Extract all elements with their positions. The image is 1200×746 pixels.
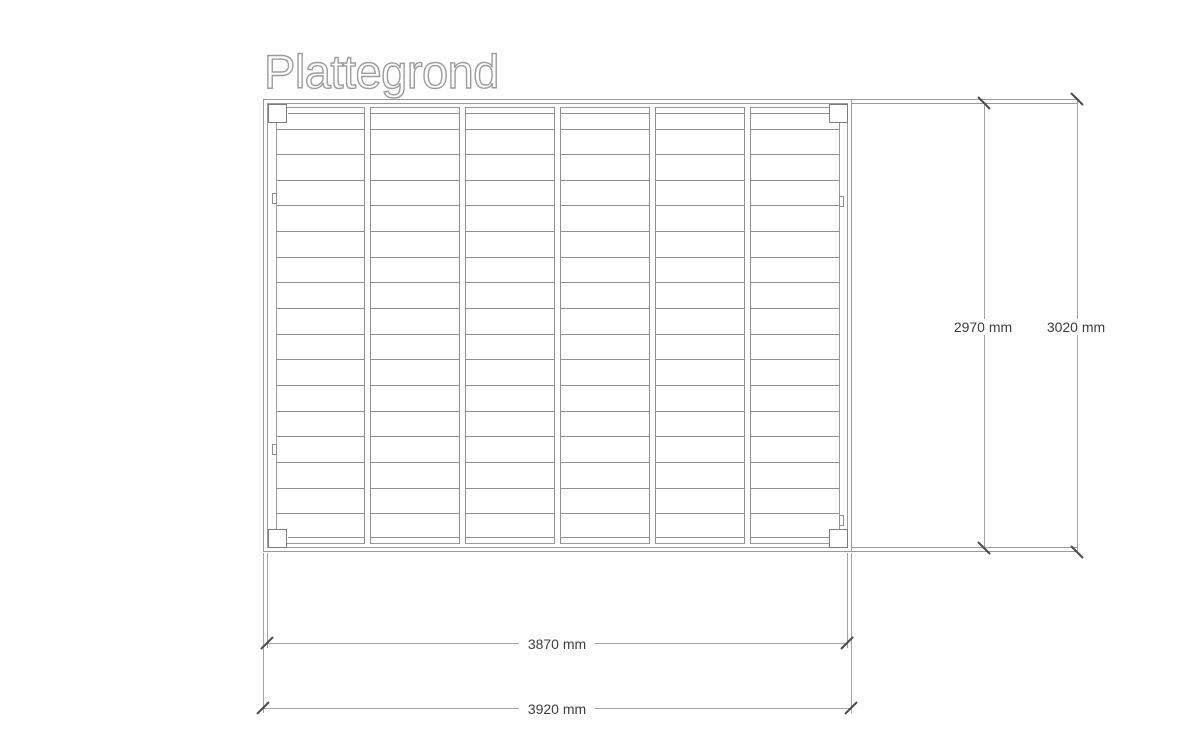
dimension-label-inner-height: 2970 mm xyxy=(945,319,1021,335)
deck-plank-line xyxy=(655,154,744,155)
deck-plank-line xyxy=(750,282,840,283)
deck-plank-line xyxy=(560,359,649,360)
deck-plank-line xyxy=(750,334,840,335)
corner-post xyxy=(829,104,848,123)
extension-line-right-inner xyxy=(847,553,848,648)
deck-plank-line xyxy=(370,257,459,258)
deck-plank-line xyxy=(655,257,744,258)
deck-plank-line xyxy=(560,154,649,155)
deck-plank-line xyxy=(750,411,840,412)
deck-plank-line xyxy=(655,282,744,283)
extension-line-left-inner xyxy=(267,553,268,648)
deck-plank-line xyxy=(655,411,744,412)
deck-plank-line xyxy=(465,282,554,283)
extension-line-bottom-right xyxy=(852,547,1078,552)
page-title: Plattegrond xyxy=(262,44,562,108)
deck-plank-line xyxy=(655,180,744,181)
corner-post xyxy=(829,529,848,548)
deck-plank-line xyxy=(465,513,554,514)
deck-plank-line xyxy=(276,411,364,412)
joist xyxy=(554,107,561,544)
deck-plank-line xyxy=(276,513,364,514)
deck-plank-line xyxy=(465,462,554,463)
deck-plank-line xyxy=(370,411,459,412)
deck-plank-line xyxy=(465,488,554,489)
deck-plank-line xyxy=(276,129,364,130)
deck-plank-line xyxy=(370,129,459,130)
deck-plank-line xyxy=(465,411,554,412)
deck-plank-line xyxy=(465,257,554,258)
deck-plank-line xyxy=(465,359,554,360)
deck-plank-line xyxy=(276,488,364,489)
deck-plank-line xyxy=(750,488,840,489)
deck-plank-line xyxy=(560,257,649,258)
deck-plank-line xyxy=(276,436,364,437)
deck-plank-line xyxy=(560,308,649,309)
dimension-label-outer-height: 3020 mm xyxy=(1038,319,1114,335)
deck-plank-line xyxy=(465,205,554,206)
deck-plank-line xyxy=(560,180,649,181)
deck-plank-line xyxy=(655,513,744,514)
deck-plank-line xyxy=(465,180,554,181)
deck-plank-line xyxy=(750,231,840,232)
deck-plank-line xyxy=(655,231,744,232)
deck-plank-line xyxy=(750,513,840,514)
deck-plank-line xyxy=(465,334,554,335)
deck-plank-line xyxy=(750,180,840,181)
deck-plank-line xyxy=(465,436,554,437)
deck-plank-line xyxy=(465,385,554,386)
deck-plank-line xyxy=(750,154,840,155)
dimension-label-inner-width: 3870 mm xyxy=(519,636,595,652)
deck-plank-line xyxy=(750,462,840,463)
page-title-text: Plattegrond xyxy=(264,45,499,98)
deck-plank-line xyxy=(276,154,364,155)
connector-mark xyxy=(272,193,277,204)
deck-plank-line xyxy=(370,359,459,360)
dimension-label-outer-width: 3920 mm xyxy=(519,701,595,717)
deck-plank-line xyxy=(370,513,459,514)
deck-plank-line xyxy=(370,488,459,489)
deck-plank-line xyxy=(750,205,840,206)
deck-plank-line xyxy=(370,308,459,309)
deck-plank-line xyxy=(276,359,364,360)
deck-plank-line xyxy=(276,205,364,206)
deck-plank-line xyxy=(276,308,364,309)
deck-plank-line xyxy=(370,334,459,335)
deck-plank-line xyxy=(370,231,459,232)
deck-plank-line xyxy=(655,436,744,437)
deck-plank-line xyxy=(750,385,840,386)
connector-mark xyxy=(272,444,277,455)
deck-plank-line xyxy=(560,334,649,335)
deck-plank-line xyxy=(655,359,744,360)
extension-line-right-outer xyxy=(851,553,852,713)
deck-plank-line xyxy=(560,488,649,489)
deck-plank-line xyxy=(276,231,364,232)
connector-mark xyxy=(839,196,844,207)
deck-plank-line xyxy=(276,334,364,335)
extension-line-top-right xyxy=(852,99,1078,104)
deck-plank-line xyxy=(370,205,459,206)
deck-plank-line xyxy=(276,257,364,258)
deck-plank-line xyxy=(560,205,649,206)
deck-plank-line xyxy=(655,308,744,309)
deck-plank-line xyxy=(750,308,840,309)
extension-line-left-outer xyxy=(263,553,264,713)
deck-plank-line xyxy=(560,411,649,412)
deck-plank-line xyxy=(370,436,459,437)
deck-plank-line xyxy=(370,154,459,155)
deck-plank-line xyxy=(560,129,649,130)
joist xyxy=(649,107,656,544)
deck-plank-line xyxy=(276,385,364,386)
joist xyxy=(459,107,466,544)
corner-post xyxy=(268,529,287,548)
deck-plank-line xyxy=(655,129,744,130)
deck-plank-line xyxy=(465,154,554,155)
joist xyxy=(744,107,751,544)
deck-plank-line xyxy=(465,129,554,130)
deck-plank-line xyxy=(560,462,649,463)
deck-plank-line xyxy=(560,282,649,283)
connector-mark xyxy=(839,515,844,526)
deck-plank-line xyxy=(655,462,744,463)
deck-plank-line xyxy=(370,385,459,386)
deck-plank-line xyxy=(655,385,744,386)
deck-plank-line xyxy=(750,257,840,258)
deck-plank-line xyxy=(560,436,649,437)
deck-plank-line xyxy=(560,385,649,386)
deck-plank-line xyxy=(276,180,364,181)
deck-plank-line xyxy=(560,513,649,514)
deck-plank-line xyxy=(465,308,554,309)
deck-plank-line xyxy=(655,334,744,335)
floor-plan-page: Plattegrond 2970 mm 3020 mm 3870 mm 3920… xyxy=(0,0,1200,746)
deck-plank-line xyxy=(560,231,649,232)
deck-plank-line xyxy=(276,282,364,283)
deck-plank-line xyxy=(655,205,744,206)
joist xyxy=(364,107,371,544)
deck-plank-line xyxy=(370,462,459,463)
deck-plank-line xyxy=(370,180,459,181)
deck-plank-line xyxy=(655,488,744,489)
deck-plank-line xyxy=(276,462,364,463)
deck-plank-line xyxy=(750,436,840,437)
deck-plank-line xyxy=(465,231,554,232)
deck-plank-line xyxy=(750,129,840,130)
deck-plank-line xyxy=(750,359,840,360)
deck-plank-line xyxy=(370,282,459,283)
